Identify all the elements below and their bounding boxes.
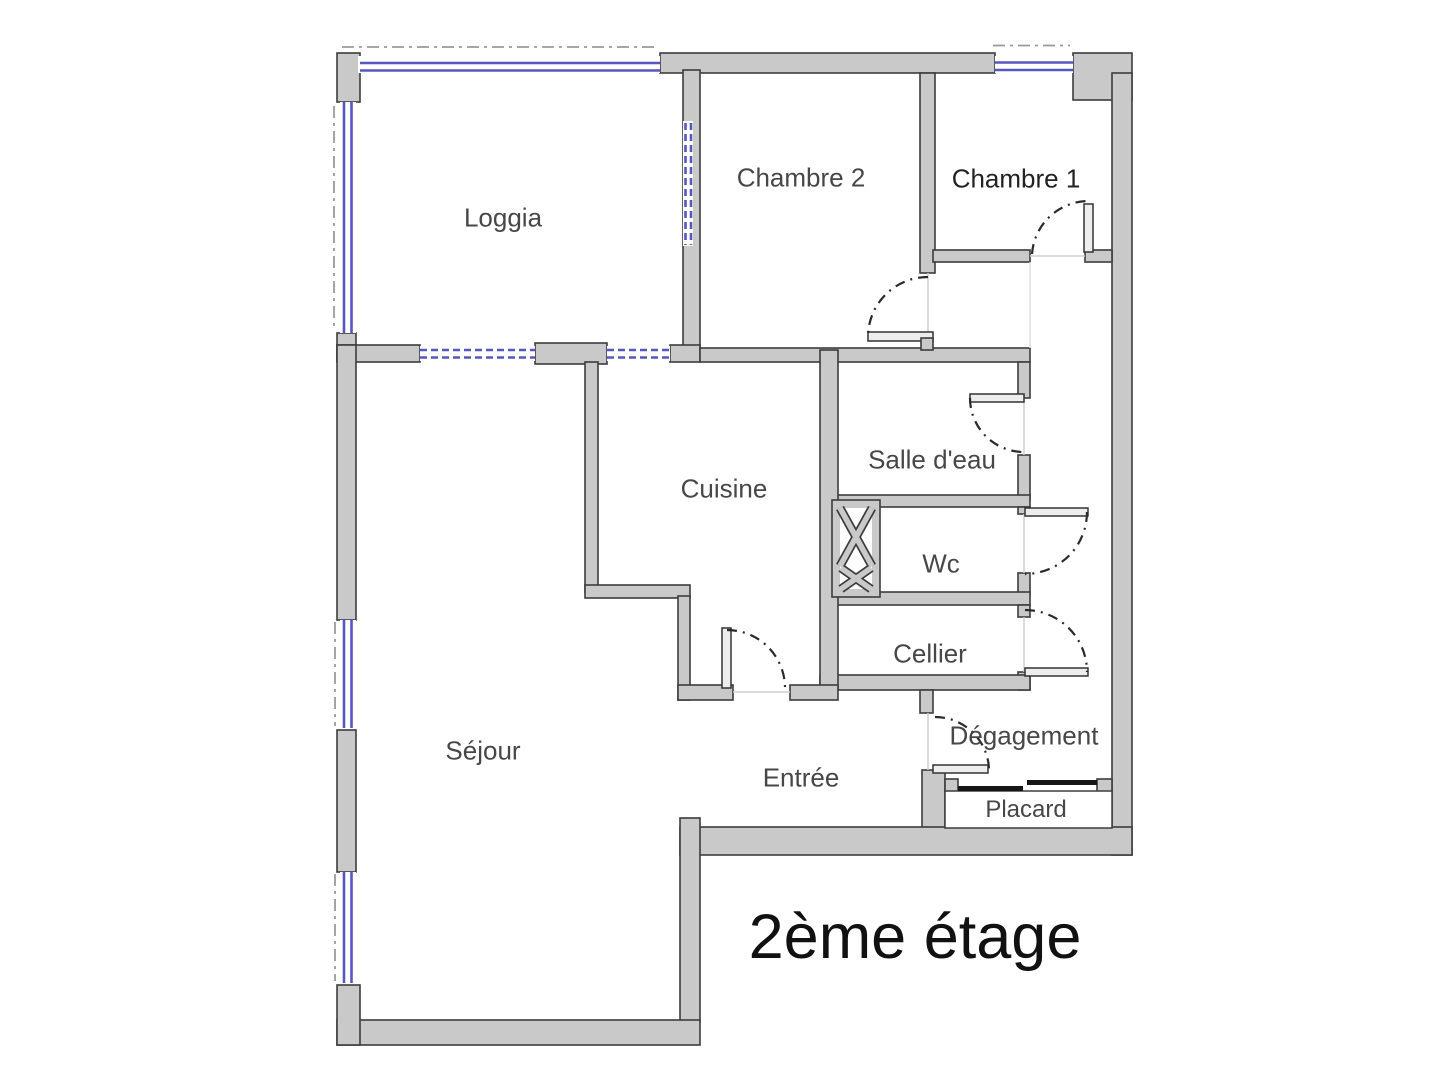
door-leaf-entree — [933, 765, 988, 773]
sliding-door-panel — [1027, 780, 1097, 785]
room-label-loggia: Loggia — [464, 203, 542, 234]
door-leaf-cuisine — [722, 628, 731, 688]
door-leaf-salle-deau — [970, 394, 1024, 402]
duct-shaft — [832, 500, 880, 597]
floorplan-canvas: Loggia Chambre 2 Chambre 1 Cuisine Salle… — [0, 0, 1440, 1080]
room-label-wc: Wc — [922, 549, 960, 580]
room-label-salle-deau: Salle d'eau — [868, 445, 996, 476]
room-label-degagement: Dégagement — [950, 721, 1099, 752]
room-label-chambre-1: Chambre 1 — [952, 164, 1081, 195]
door-leaf-chambre1 — [1084, 204, 1093, 252]
walls — [337, 53, 1132, 1045]
door-leaf-cellier — [1025, 668, 1088, 676]
room-label-entree: Entrée — [763, 763, 840, 794]
floor-plan-drawing — [0, 0, 1440, 1080]
floor-title: 2ème étage — [749, 901, 1082, 973]
room-label-chambre-2: Chambre 2 — [737, 163, 866, 194]
room-label-cuisine: Cuisine — [681, 474, 768, 505]
room-label-placard: Placard — [985, 796, 1066, 824]
door-leaf-wc — [1025, 508, 1088, 516]
room-label-cellier: Cellier — [893, 639, 967, 670]
sliding-door-panel — [958, 786, 1023, 791]
room-label-sejour: Séjour — [445, 736, 520, 767]
